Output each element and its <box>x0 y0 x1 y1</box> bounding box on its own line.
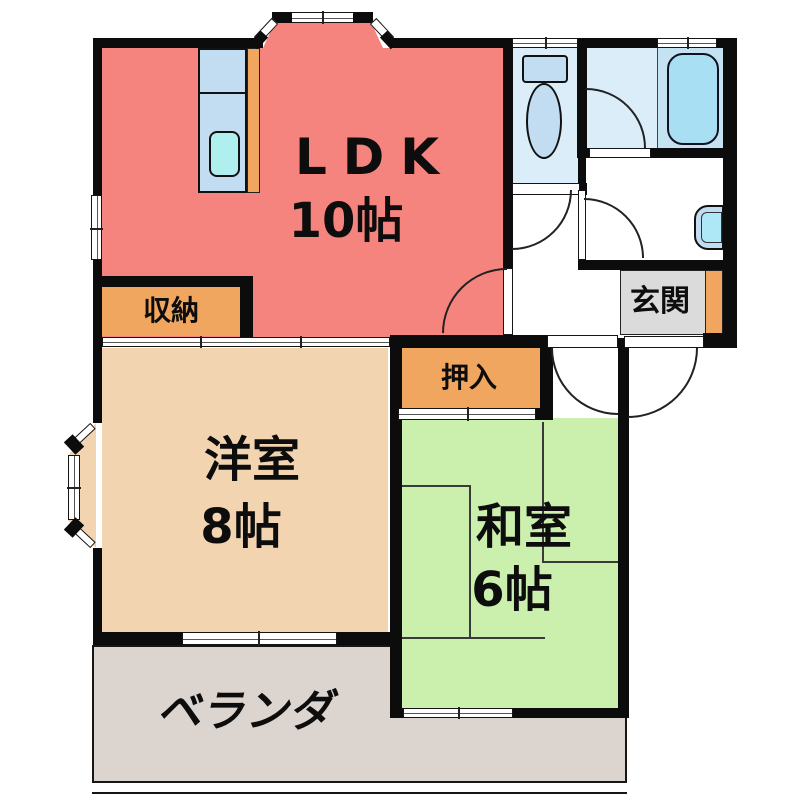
door-arc-washroom <box>584 198 644 258</box>
label-oshiire: 押入 <box>441 364 497 392</box>
label-entrance: 玄関 <box>630 287 690 317</box>
door-arc-toilet <box>512 190 572 250</box>
bathtub-icon <box>667 53 719 145</box>
wall-western-bottom-b <box>337 632 398 645</box>
room-western <box>102 348 388 632</box>
label-veranda: ベランダ <box>155 690 340 734</box>
door-opening-corridor <box>547 335 618 348</box>
window-tick <box>322 11 324 24</box>
label-storage: 収納 <box>143 297 199 325</box>
veranda-outer-line <box>92 792 627 794</box>
kitchen-counter-divider <box>198 92 247 94</box>
label-ldk: LDK <box>295 132 455 182</box>
window-tick <box>67 487 81 489</box>
window-tick <box>687 37 689 49</box>
wall-left-c <box>93 548 102 645</box>
wall-top-c <box>578 38 657 48</box>
label-western-size: 8帖 <box>200 503 281 551</box>
washbasin-bowl <box>701 212 722 243</box>
label-japanese: 和室 <box>476 503 572 551</box>
wall-left-a <box>93 38 102 196</box>
floor-plan: LDK 10帖 収納 押入 玄関 洋室 8帖 和室 6帖 ベランダ <box>0 0 800 800</box>
toilet-bowl-icon <box>526 83 562 159</box>
wall-japanese-bottom <box>513 708 629 718</box>
window-tick <box>90 228 103 230</box>
door-arc-corridor <box>551 348 618 415</box>
label-western: 洋室 <box>204 436 300 484</box>
window-tick <box>200 336 202 348</box>
wall-western-japanese <box>390 337 402 718</box>
sliding-door-ldk-western <box>102 337 390 347</box>
window-tick <box>467 407 469 421</box>
entrance-step-strip <box>705 271 722 334</box>
wall-entrance-top <box>578 260 723 270</box>
wall-western-bottom-a <box>93 632 182 645</box>
label-japanese-size: 6帖 <box>471 566 552 614</box>
window-tick <box>258 631 260 646</box>
wall-top-b <box>390 38 512 48</box>
tatami-line <box>542 561 618 563</box>
wall-oshiire-pier <box>536 408 548 420</box>
wall-right-outer <box>723 38 737 348</box>
wall-top-a <box>93 38 263 48</box>
window-tick <box>545 37 547 49</box>
door-opening-entrance <box>624 336 704 348</box>
tatami-line <box>400 485 470 487</box>
door-opening-bathroom <box>589 148 651 158</box>
ldk-bay-window-floor <box>263 22 383 48</box>
toilet-tank-icon <box>522 55 568 83</box>
wall-entrance-bottom <box>703 333 737 348</box>
kitchen-bay-corner-r <box>353 12 373 23</box>
label-ldk-size: 10帖 <box>289 197 404 245</box>
kitchen-side-strip <box>247 48 260 193</box>
window-tick <box>458 707 460 719</box>
tatami-line <box>400 637 545 639</box>
wall-storage-top <box>93 276 253 287</box>
wall-ldk-bottom <box>390 335 540 348</box>
kitchen-sink-icon <box>209 131 240 177</box>
door-arc-entrance <box>628 348 698 418</box>
window-tick <box>300 336 302 348</box>
